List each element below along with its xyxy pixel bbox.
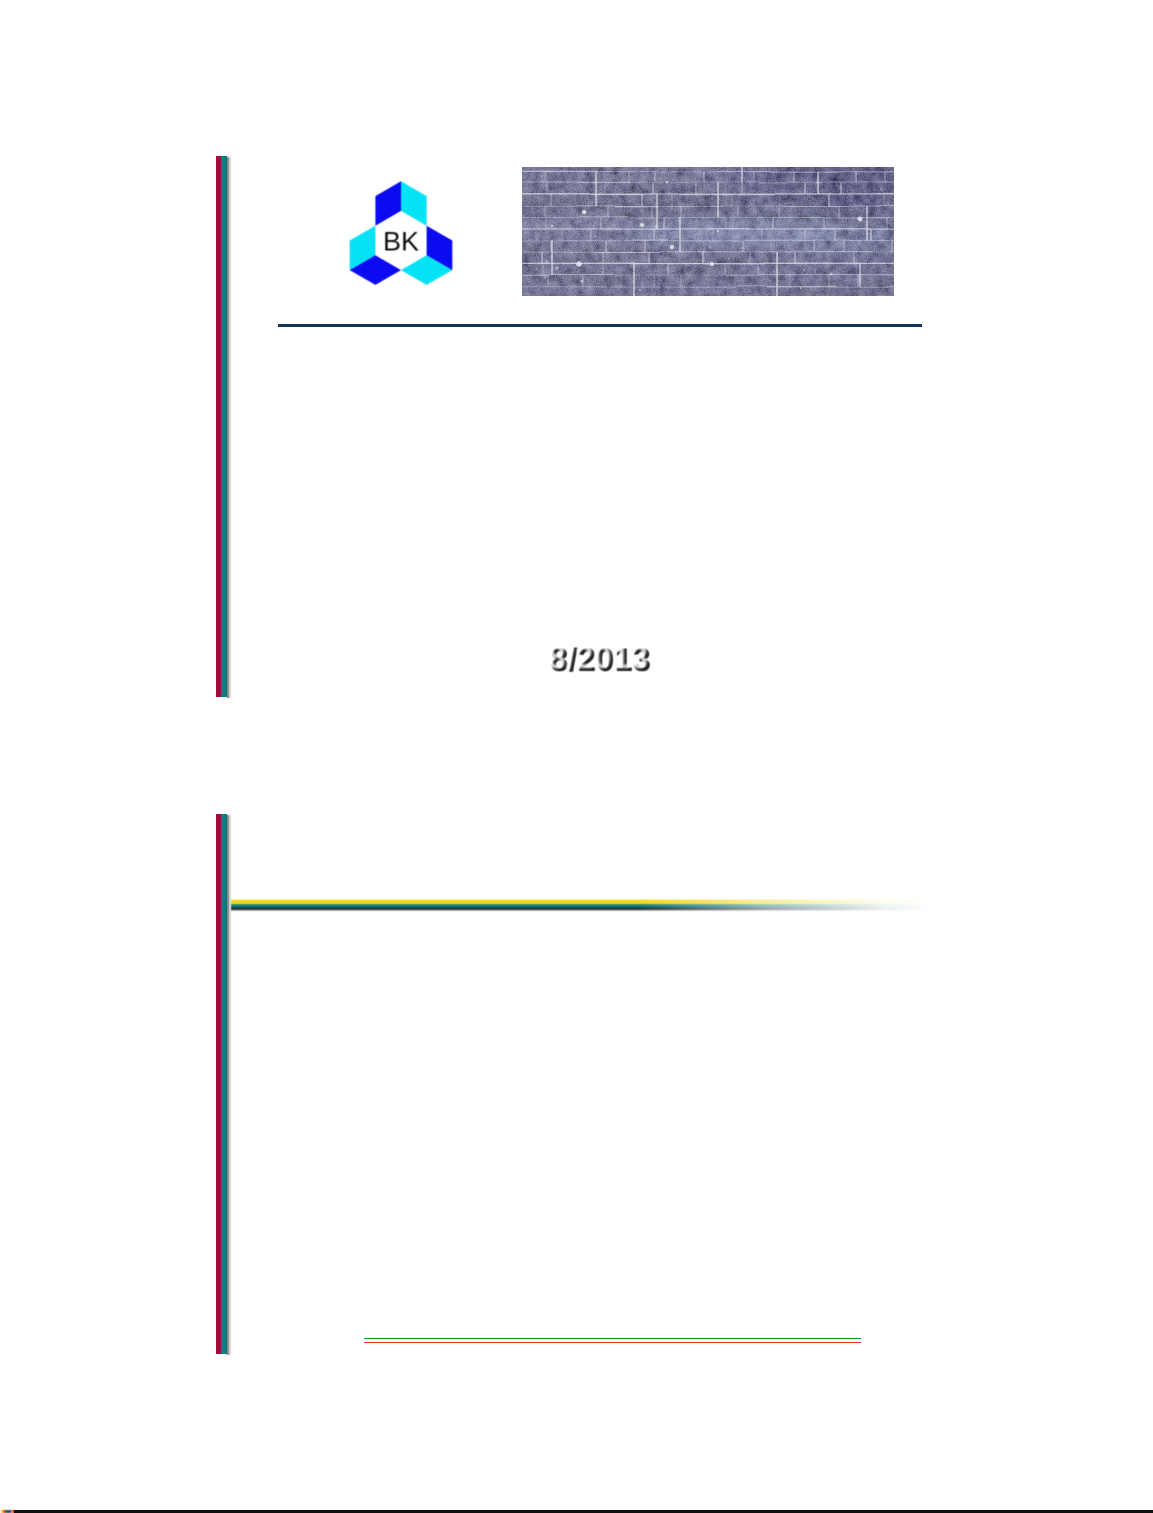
svg-text:BK: BK	[383, 227, 419, 257]
